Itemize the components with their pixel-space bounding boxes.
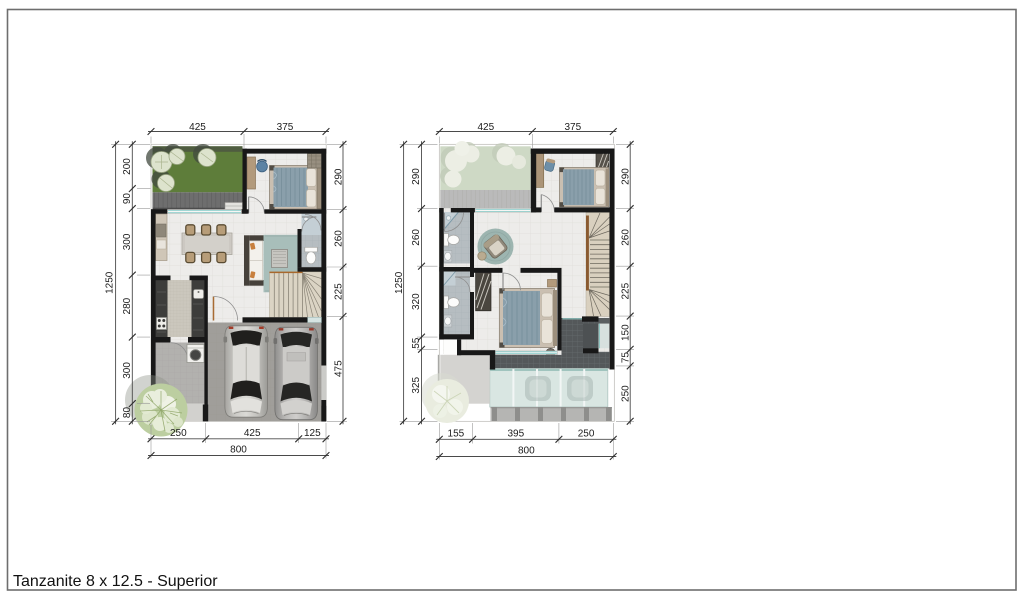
svg-text:225: 225: [620, 282, 631, 299]
svg-text:290: 290: [620, 168, 631, 185]
svg-text:425: 425: [244, 428, 261, 439]
svg-text:300: 300: [122, 362, 133, 379]
svg-text:Tanzanite 8 x 12.5 - Superior: Tanzanite 8 x 12.5 - Superior: [13, 573, 218, 590]
svg-text:395: 395: [507, 429, 524, 440]
svg-text:325: 325: [411, 377, 422, 394]
svg-text:800: 800: [518, 446, 535, 457]
svg-text:90: 90: [122, 193, 133, 205]
svg-text:280: 280: [122, 297, 133, 314]
svg-text:1250: 1250: [105, 271, 116, 294]
svg-text:475: 475: [333, 360, 344, 377]
svg-text:80: 80: [122, 407, 133, 419]
svg-text:150: 150: [620, 324, 631, 341]
svg-text:155: 155: [448, 429, 465, 440]
svg-text:260: 260: [411, 229, 422, 246]
svg-text:250: 250: [578, 429, 595, 440]
svg-text:290: 290: [333, 168, 344, 185]
svg-text:800: 800: [230, 445, 247, 456]
svg-text:260: 260: [620, 229, 631, 246]
svg-text:425: 425: [189, 122, 206, 133]
svg-text:290: 290: [411, 168, 422, 185]
svg-text:225: 225: [333, 283, 344, 300]
svg-text:260: 260: [333, 230, 344, 247]
svg-text:320: 320: [411, 293, 422, 310]
svg-text:375: 375: [277, 122, 294, 133]
svg-text:55: 55: [411, 337, 422, 349]
svg-text:250: 250: [170, 428, 187, 439]
svg-text:200: 200: [122, 158, 133, 175]
svg-text:125: 125: [304, 428, 321, 439]
svg-text:375: 375: [564, 122, 581, 133]
svg-text:75: 75: [620, 352, 631, 364]
svg-text:425: 425: [477, 122, 494, 133]
svg-text:1250: 1250: [394, 271, 405, 294]
svg-text:250: 250: [620, 385, 631, 402]
svg-text:300: 300: [122, 233, 133, 250]
